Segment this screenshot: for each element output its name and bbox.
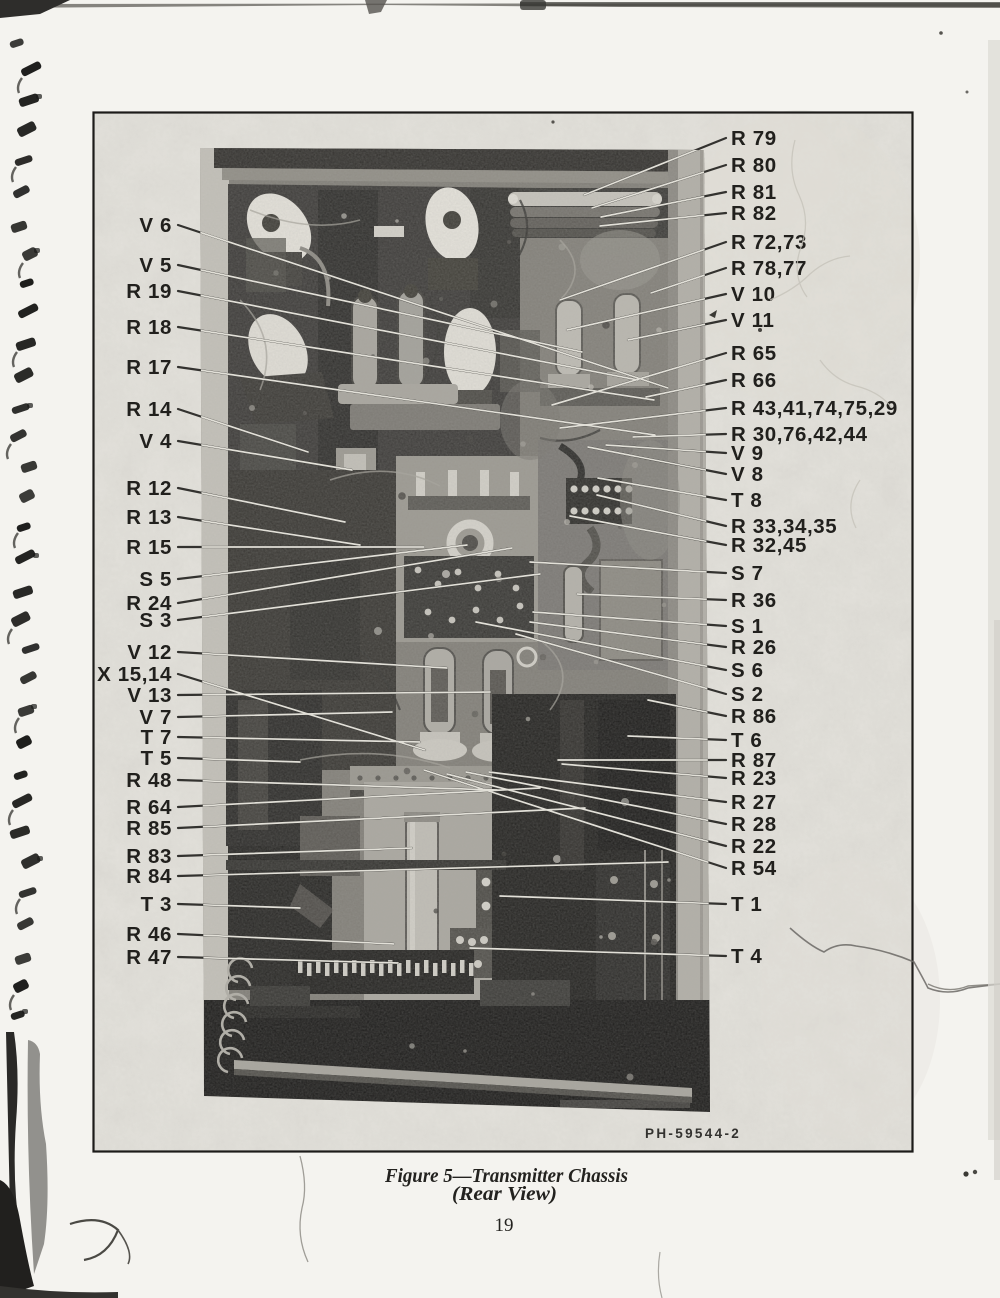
svg-text:R 19: R 19 bbox=[126, 280, 172, 303]
svg-text:R 32,45: R 32,45 bbox=[731, 534, 807, 557]
svg-text:R 54: R 54 bbox=[731, 857, 777, 880]
svg-text:V 6: V 6 bbox=[139, 214, 172, 237]
svg-text:R 64: R 64 bbox=[126, 796, 172, 819]
svg-text:R 47: R 47 bbox=[126, 946, 172, 969]
svg-text:PH-59544-2: PH-59544-2 bbox=[645, 1126, 740, 1141]
svg-text:R 15: R 15 bbox=[126, 536, 172, 559]
svg-text:T 8: T 8 bbox=[731, 489, 762, 512]
svg-text:R 14: R 14 bbox=[126, 398, 172, 421]
svg-text:(Rear View): (Rear View) bbox=[452, 1183, 557, 1205]
svg-text:V 5: V 5 bbox=[139, 254, 172, 277]
svg-text:V 12: V 12 bbox=[127, 641, 172, 664]
svg-text:R 12: R 12 bbox=[126, 477, 172, 500]
svg-text:R 22: R 22 bbox=[731, 835, 777, 858]
svg-text:S 6: S 6 bbox=[731, 659, 764, 682]
svg-text:R 26: R 26 bbox=[731, 636, 777, 659]
svg-text:R 65: R 65 bbox=[731, 342, 777, 365]
svg-text:V 10: V 10 bbox=[731, 283, 776, 306]
svg-text:R 13: R 13 bbox=[126, 506, 172, 529]
svg-text:R 85: R 85 bbox=[126, 817, 172, 840]
svg-text:R 27: R 27 bbox=[731, 791, 777, 814]
svg-text:R 23: R 23 bbox=[731, 767, 777, 790]
svg-text:R 82: R 82 bbox=[731, 202, 777, 225]
svg-text:V 8: V 8 bbox=[731, 463, 764, 486]
svg-text:T 4: T 4 bbox=[731, 945, 762, 968]
svg-text:V 4: V 4 bbox=[139, 430, 172, 453]
svg-text:T 7: T 7 bbox=[141, 726, 172, 749]
svg-text:R 46: R 46 bbox=[126, 923, 172, 946]
svg-text:R 84: R 84 bbox=[126, 865, 172, 888]
svg-text:R 66: R 66 bbox=[731, 369, 777, 392]
svg-text:X 15,14: X 15,14 bbox=[97, 663, 172, 686]
svg-text:S 1: S 1 bbox=[731, 615, 764, 638]
svg-text:19: 19 bbox=[495, 1215, 514, 1236]
svg-text:S 7: S 7 bbox=[731, 562, 764, 585]
svg-text:S 2: S 2 bbox=[731, 683, 764, 706]
svg-text:V 11: V 11 bbox=[731, 309, 774, 332]
svg-text:R 81: R 81 bbox=[731, 181, 777, 204]
svg-text:R 17: R 17 bbox=[126, 356, 172, 379]
svg-text:T 1: T 1 bbox=[731, 893, 762, 916]
svg-text:S 3: S 3 bbox=[139, 609, 172, 632]
svg-text:R 43,41,74,75,29: R 43,41,74,75,29 bbox=[731, 397, 898, 420]
svg-text:R 18: R 18 bbox=[126, 316, 172, 339]
svg-text:R 78,77: R 78,77 bbox=[731, 257, 807, 280]
svg-text:T 5: T 5 bbox=[141, 747, 172, 770]
svg-text:R 72,73: R 72,73 bbox=[731, 231, 807, 254]
svg-text:S 5: S 5 bbox=[139, 568, 172, 591]
svg-text:R 86: R 86 bbox=[731, 705, 777, 728]
svg-text:T 3: T 3 bbox=[141, 893, 172, 916]
svg-text:R 48: R 48 bbox=[126, 769, 172, 792]
svg-text:R 36: R 36 bbox=[731, 589, 777, 612]
svg-text:V 9: V 9 bbox=[731, 442, 764, 465]
svg-text:R 80: R 80 bbox=[731, 154, 777, 177]
svg-text:V 13: V 13 bbox=[127, 684, 172, 707]
svg-text:R 28: R 28 bbox=[731, 813, 777, 836]
svg-text:R 79: R 79 bbox=[731, 127, 777, 150]
